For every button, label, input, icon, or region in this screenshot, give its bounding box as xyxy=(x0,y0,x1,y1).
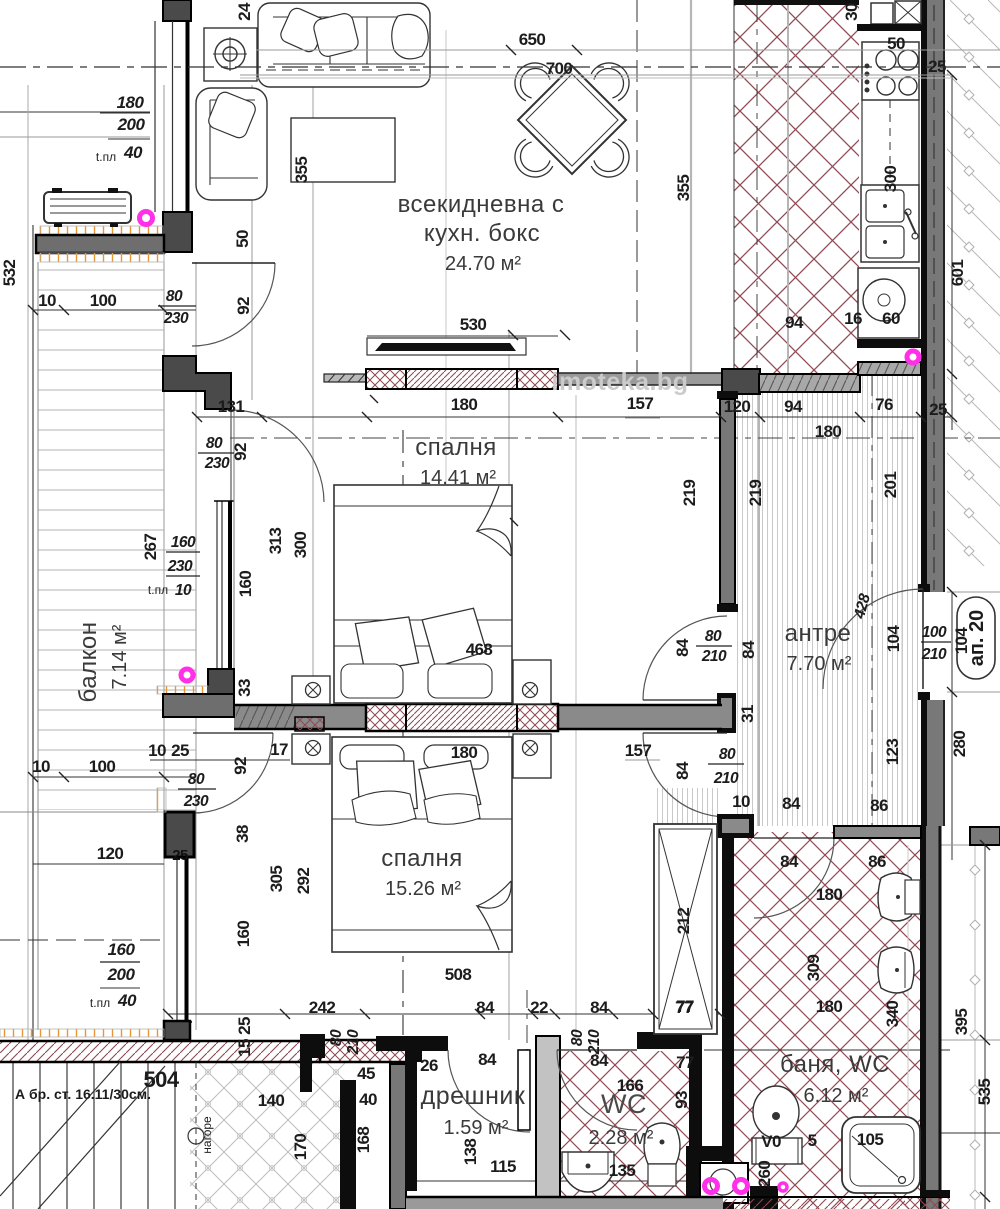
svg-text:650: 650 xyxy=(519,30,546,49)
svg-text:300: 300 xyxy=(291,532,310,559)
svg-text:14.41 м²: 14.41 м² xyxy=(420,467,496,489)
svg-text:80: 80 xyxy=(188,771,205,788)
svg-text:355: 355 xyxy=(674,175,693,202)
svg-text:24.70 м²: 24.70 м² xyxy=(445,253,521,275)
svg-text:А бр. ст. 16.11/30см.: А бр. ст. 16.11/30см. xyxy=(15,1086,151,1102)
svg-text:395: 395 xyxy=(952,1009,971,1036)
svg-text:180: 180 xyxy=(117,93,145,112)
svg-text:93: 93 xyxy=(672,1091,691,1109)
svg-text:532: 532 xyxy=(0,260,19,287)
svg-text:94: 94 xyxy=(785,313,804,332)
svg-text:160: 160 xyxy=(234,921,253,948)
svg-text:180: 180 xyxy=(816,997,843,1016)
svg-text:160: 160 xyxy=(171,534,196,551)
svg-text:38: 38 xyxy=(233,825,252,843)
svg-text:135: 135 xyxy=(609,1161,636,1180)
svg-text:t.пл: t.пл xyxy=(96,150,116,164)
svg-text:219: 219 xyxy=(746,480,765,507)
svg-text:80: 80 xyxy=(569,1029,586,1046)
svg-text:200: 200 xyxy=(107,965,136,984)
svg-text:15: 15 xyxy=(235,1039,254,1057)
svg-text:антре: антре xyxy=(785,620,852,647)
svg-text:230: 230 xyxy=(167,558,193,575)
svg-text:292: 292 xyxy=(294,868,313,895)
svg-text:535: 535 xyxy=(975,1079,994,1106)
svg-text:230: 230 xyxy=(183,793,209,810)
svg-text:140: 140 xyxy=(258,1091,285,1110)
svg-text:86: 86 xyxy=(870,796,888,815)
svg-text:10: 10 xyxy=(732,792,750,811)
svg-text:V0: V0 xyxy=(761,1132,781,1151)
svg-text:210: 210 xyxy=(713,770,739,787)
svg-text:7.70 м²: 7.70 м² xyxy=(787,653,852,675)
svg-text:157: 157 xyxy=(627,394,654,413)
svg-text:25: 25 xyxy=(172,847,188,864)
svg-text:508: 508 xyxy=(445,965,472,984)
svg-text:60: 60 xyxy=(882,309,900,328)
svg-text:77: 77 xyxy=(676,997,694,1016)
svg-text:210: 210 xyxy=(701,648,727,665)
svg-text:5: 5 xyxy=(808,1131,817,1150)
svg-text:6.12 м²: 6.12 м² xyxy=(804,1085,869,1107)
svg-text:92: 92 xyxy=(234,297,253,315)
svg-text:100: 100 xyxy=(922,624,947,641)
svg-text:260: 260 xyxy=(755,1161,774,1188)
svg-text:160: 160 xyxy=(108,940,136,959)
svg-text:t.пл: t.пл xyxy=(90,996,110,1010)
svg-text:180: 180 xyxy=(816,885,843,904)
svg-text:16: 16 xyxy=(844,309,862,328)
svg-text:24: 24 xyxy=(235,2,254,21)
svg-text:355: 355 xyxy=(292,157,311,184)
svg-text:15.26 м²: 15.26 м² xyxy=(385,878,461,900)
svg-text:94: 94 xyxy=(784,397,803,416)
svg-text:84: 84 xyxy=(782,794,801,813)
svg-text:40: 40 xyxy=(359,1090,377,1109)
svg-text:200: 200 xyxy=(117,115,146,134)
svg-text:92: 92 xyxy=(231,443,250,461)
svg-text:10: 10 xyxy=(175,582,192,599)
svg-text:210: 210 xyxy=(921,646,947,663)
svg-text:84: 84 xyxy=(673,761,692,780)
svg-text:166: 166 xyxy=(617,1076,644,1095)
svg-text:40: 40 xyxy=(117,991,137,1010)
svg-text:530: 530 xyxy=(460,315,487,334)
svg-text:76: 76 xyxy=(875,395,893,414)
svg-text:спалня: спалня xyxy=(381,845,463,872)
svg-text:210: 210 xyxy=(345,1029,362,1055)
svg-text:кухн. бокс: кухн. бокс xyxy=(424,220,540,247)
svg-text:25: 25 xyxy=(171,741,189,760)
svg-text:120: 120 xyxy=(724,397,751,416)
svg-text:313: 313 xyxy=(266,528,285,555)
svg-text:242: 242 xyxy=(309,998,336,1017)
svg-text:1.59 м²: 1.59 м² xyxy=(444,1117,509,1139)
svg-text:80: 80 xyxy=(328,1029,345,1046)
svg-text:157: 157 xyxy=(625,741,652,760)
svg-text:дрешник: дрешник xyxy=(421,1082,526,1110)
svg-text:267: 267 xyxy=(141,534,160,561)
svg-text:84: 84 xyxy=(478,1050,497,1069)
svg-text:40: 40 xyxy=(123,143,143,162)
svg-text:280: 280 xyxy=(950,731,969,758)
svg-text:84: 84 xyxy=(780,852,799,871)
svg-text:123: 123 xyxy=(883,739,902,766)
svg-text:10: 10 xyxy=(148,741,166,760)
svg-text:26: 26 xyxy=(420,1056,438,1075)
svg-text:100: 100 xyxy=(89,757,116,776)
svg-text:180: 180 xyxy=(815,422,842,441)
svg-text:84: 84 xyxy=(590,998,609,1017)
svg-text:25: 25 xyxy=(235,1017,254,1035)
svg-text:180: 180 xyxy=(451,395,478,414)
svg-text:170: 170 xyxy=(291,1134,310,1161)
svg-text:балкон: балкон xyxy=(75,622,102,703)
svg-text:10: 10 xyxy=(32,757,50,776)
svg-text:80: 80 xyxy=(206,435,223,452)
svg-text:138: 138 xyxy=(461,1139,480,1166)
svg-text:340: 340 xyxy=(883,1001,902,1028)
svg-text:468: 468 xyxy=(466,640,493,659)
svg-text:2.28 м²: 2.28 м² xyxy=(589,1127,654,1149)
svg-text:баня, WC: баня, WC xyxy=(780,1051,890,1078)
svg-text:168: 168 xyxy=(354,1127,373,1154)
svg-text:нагоре: нагоре xyxy=(200,1116,214,1154)
svg-text:105: 105 xyxy=(857,1130,884,1149)
svg-text:115: 115 xyxy=(490,1157,516,1176)
svg-text:120: 120 xyxy=(97,844,124,863)
svg-text:104: 104 xyxy=(952,627,971,655)
svg-text:92: 92 xyxy=(231,757,250,775)
svg-text:всекидневна с: всекидневна с xyxy=(398,191,565,218)
svg-text:212: 212 xyxy=(674,908,693,935)
svg-text:84: 84 xyxy=(739,640,758,659)
svg-text:7.14 м²: 7.14 м² xyxy=(109,624,131,689)
svg-text:104: 104 xyxy=(884,625,903,653)
svg-text:309: 309 xyxy=(804,955,823,982)
svg-text:160: 160 xyxy=(236,571,255,598)
svg-text:84: 84 xyxy=(476,998,495,1017)
svg-text:80: 80 xyxy=(719,746,736,763)
svg-text:100: 100 xyxy=(90,291,117,310)
svg-text:230: 230 xyxy=(204,455,230,472)
svg-text:201: 201 xyxy=(881,472,900,499)
svg-text:33: 33 xyxy=(235,679,254,697)
svg-text:300: 300 xyxy=(881,166,900,193)
svg-text:31: 31 xyxy=(738,705,757,723)
svg-text:t.пл: t.пл xyxy=(148,583,168,597)
svg-text:86: 86 xyxy=(868,852,886,871)
svg-text:84: 84 xyxy=(673,638,692,657)
svg-text:601: 601 xyxy=(948,260,967,287)
svg-text:80: 80 xyxy=(705,628,722,645)
svg-text:131: 131 xyxy=(218,397,245,416)
svg-text:219: 219 xyxy=(680,480,699,507)
svg-text:45: 45 xyxy=(357,1064,375,1083)
svg-text:77: 77 xyxy=(676,1053,694,1072)
svg-text:17: 17 xyxy=(270,740,288,759)
svg-text:180: 180 xyxy=(451,743,478,762)
svg-text:50: 50 xyxy=(233,230,252,248)
svg-text:305: 305 xyxy=(267,866,286,893)
svg-text:84: 84 xyxy=(590,1051,609,1070)
svg-text:80: 80 xyxy=(166,288,183,305)
svg-text:10: 10 xyxy=(38,291,56,310)
svg-text:30: 30 xyxy=(842,3,861,21)
svg-text:imoteka.bg: imoteka.bg xyxy=(552,368,689,396)
svg-text:спалня: спалня xyxy=(415,434,497,461)
svg-text:25: 25 xyxy=(929,400,947,419)
